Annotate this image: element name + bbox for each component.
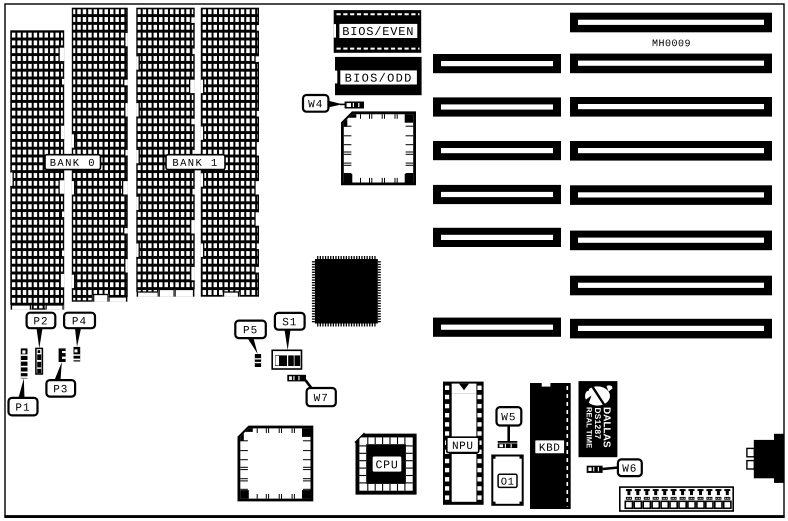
svg-text:W6: W6 — [622, 464, 637, 476]
svg-text:BANK 0: BANK 0 — [50, 158, 96, 170]
svg-text:NPU: NPU — [452, 441, 474, 453]
svg-text:W4: W4 — [308, 99, 323, 111]
svg-text:P3: P3 — [53, 384, 68, 396]
svg-text:W7: W7 — [314, 393, 329, 405]
svg-text:P4: P4 — [72, 316, 87, 328]
svg-text:P1: P1 — [15, 403, 30, 415]
svg-text:CPU: CPU — [375, 459, 398, 472]
svg-text:BIOS/ODD: BIOS/ODD — [345, 72, 413, 86]
svg-text:S1: S1 — [282, 317, 297, 329]
svg-text:O1: O1 — [501, 477, 515, 489]
svg-text:BIOS/EVEN: BIOS/EVEN — [342, 25, 414, 39]
svg-text:P2: P2 — [33, 316, 48, 328]
svg-text:MH0009: MH0009 — [652, 39, 691, 50]
svg-text:P5: P5 — [243, 325, 258, 337]
svg-text:W5: W5 — [501, 412, 516, 424]
svg-text:BANK 1: BANK 1 — [172, 158, 218, 170]
svg-text:KBD: KBD — [539, 443, 561, 455]
svg-text:REAL TIME: REAL TIME — [585, 407, 594, 448]
